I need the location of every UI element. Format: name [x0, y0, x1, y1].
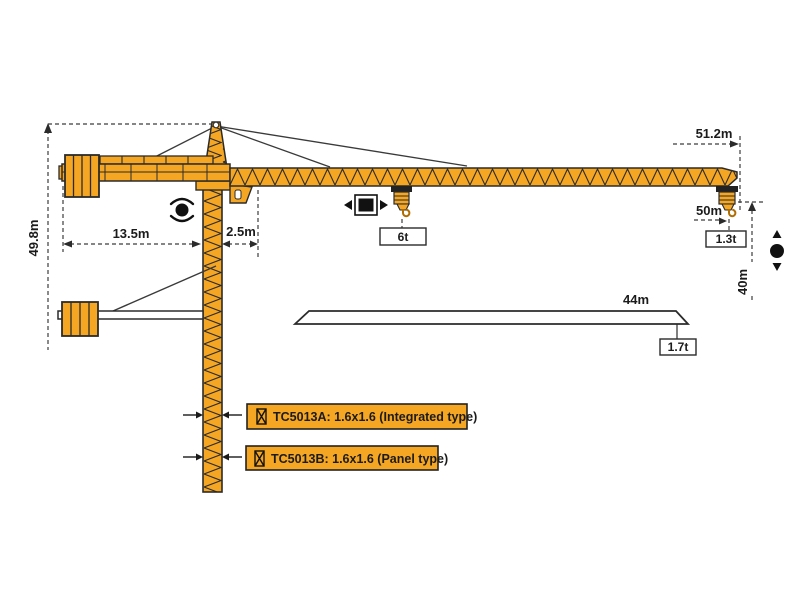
- cab-window: [235, 190, 241, 199]
- trolley-travel-icon: [344, 195, 388, 215]
- ground-ballast: [58, 266, 216, 336]
- rear-clearance-label: 2.5m: [226, 224, 256, 239]
- mast-lattice: [203, 188, 222, 492]
- jib-tie-2: [216, 126, 467, 166]
- radius-arrow-right: [730, 141, 739, 148]
- counterjib-deck: [100, 156, 213, 164]
- max-radius-label: 51.2m: [696, 126, 733, 141]
- short-jib-length-label: 44m: [623, 292, 649, 307]
- load-boxes: 6t 1.3t 1.7t: [380, 228, 746, 355]
- jib-lattice: [230, 168, 737, 186]
- trolley-mid: [391, 186, 412, 216]
- rope-length-label: 50m: [696, 203, 722, 218]
- slewing-rotation-icon: [171, 199, 193, 221]
- trolley-frame-tip: [716, 186, 738, 192]
- model-a-label: TC5013A: 1.6x1.6 (Integrated type): [273, 410, 477, 424]
- rear-arrow-right: [250, 241, 258, 248]
- slewing-platform: [196, 181, 234, 190]
- jib-tie-1: [216, 126, 330, 167]
- rear-arrow-left: [222, 241, 230, 248]
- max-load-value: 6t: [398, 230, 409, 244]
- counterjib-arrow-left: [63, 241, 72, 248]
- short-jib-outline: [295, 311, 688, 339]
- apex-pin: [213, 122, 219, 128]
- trolley-frame: [391, 186, 412, 192]
- crane-diagram-stage: 6t 1.3t 1.7t 49.8m 13.5m 2.5m 51.2m 50m …: [0, 0, 800, 600]
- short-jib-tip-load-value: 1.7t: [668, 340, 689, 354]
- under-hook-label: 40m: [735, 269, 750, 295]
- rope-arrow-right: [719, 218, 727, 225]
- model-b-label: TC5013B: 1.6x1.6 (Panel type): [271, 452, 448, 466]
- hoist-block: [394, 192, 409, 204]
- counterjib-radius-label: 13.5m: [113, 226, 150, 241]
- hook-icon-tip: [729, 209, 735, 216]
- counterjib-arrow-right: [192, 241, 201, 248]
- tip-load-value: 1.3t: [716, 232, 737, 246]
- jib: [230, 168, 737, 186]
- hoisting-icon: [770, 230, 784, 271]
- mast-section-callouts: TC5013A: 1.6x1.6 (Integrated type) TC501…: [183, 404, 477, 470]
- short-jib-shape: [295, 311, 688, 324]
- total-height-label: 49.8m: [26, 220, 41, 257]
- crane-diagram: 6t 1.3t 1.7t 49.8m 13.5m 2.5m 51.2m 50m …: [0, 0, 800, 600]
- ballast-tie-line: [113, 266, 216, 311]
- underhook-arrow-up: [748, 202, 756, 211]
- hook-icon: [403, 209, 409, 216]
- tower-mast: [203, 188, 222, 492]
